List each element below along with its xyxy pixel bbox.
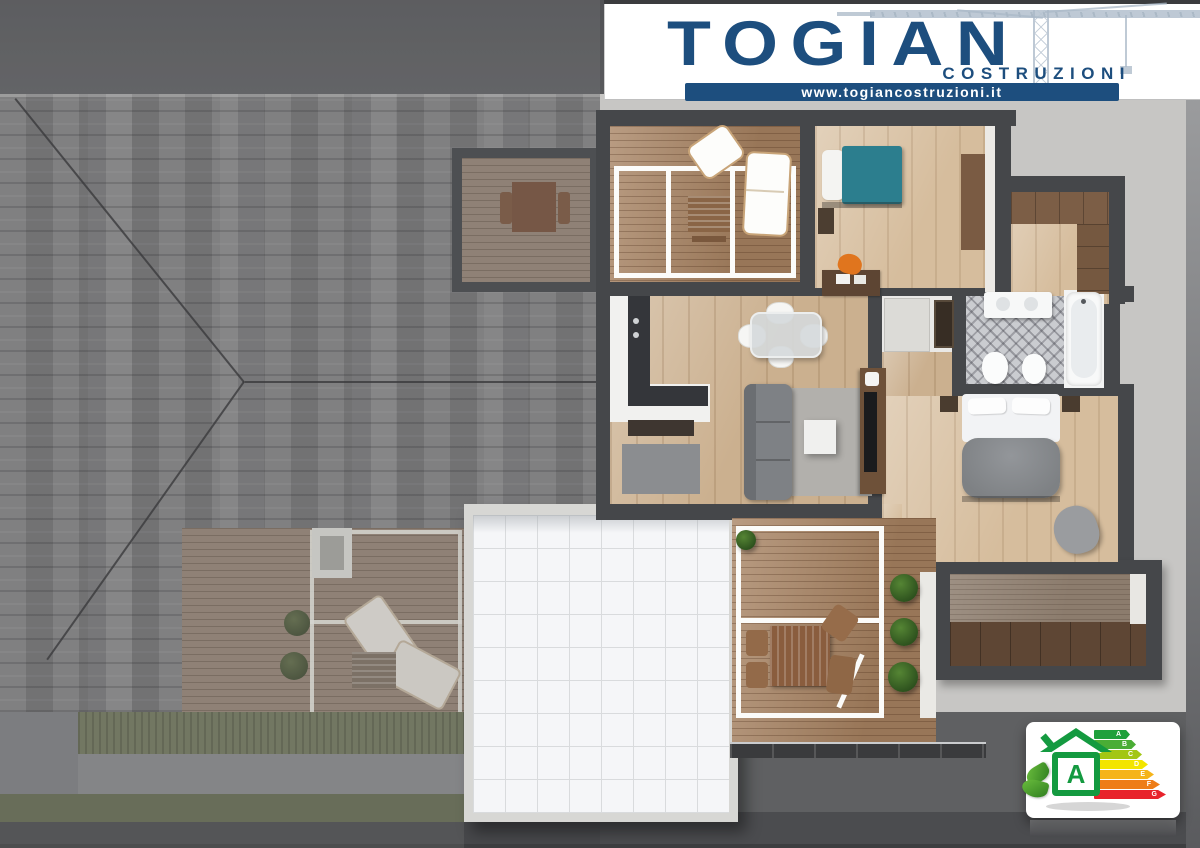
desk-papers (854, 275, 866, 284)
bed-base-shadow (962, 496, 1060, 502)
desk-papers (836, 274, 850, 284)
house-shadow (1046, 802, 1130, 811)
energy-class-letter: D (1134, 761, 1139, 768)
terrace-chair (746, 630, 768, 656)
nightstand (940, 396, 958, 412)
hall-shelf-unit (884, 298, 930, 352)
wardrobe (961, 154, 985, 250)
bed-pillow (822, 150, 844, 200)
hob-burner (633, 318, 639, 324)
slatted-coffee-table (688, 196, 730, 232)
walkin-closet-cabinets (1011, 192, 1109, 224)
master-bed-duvet (962, 438, 1060, 498)
gray-rug (622, 444, 700, 494)
bathtub-faucet (1081, 299, 1086, 304)
hob-burner (633, 332, 639, 338)
bed-pillow (968, 397, 1007, 414)
website-bar: www.togiancostruzioni.it (685, 83, 1119, 101)
sofa-cushion-seam (756, 459, 790, 461)
terrace-chair (746, 662, 768, 688)
terrace-dining-table (770, 626, 830, 686)
energy-class-letter: E (1140, 771, 1145, 778)
wall (995, 110, 1011, 300)
website-url: www.togiancostruzioni.it (801, 84, 1002, 100)
energy-class-letter: C (1128, 751, 1133, 758)
bush (888, 662, 918, 692)
sofa-backrest (744, 384, 756, 500)
logo-tagline: COSTRUZIONI (942, 64, 1131, 84)
storage-cabinets (950, 622, 1146, 666)
bush (736, 530, 756, 550)
energy-class-letter: B (1122, 741, 1127, 748)
house-roof-inner (1050, 736, 1102, 753)
slatted-table-shelf (692, 236, 726, 242)
sink-bowl (1024, 297, 1038, 311)
coffee-table-cube (804, 420, 836, 454)
terrace-railing-post (730, 166, 735, 278)
energy-house-icon: A (1052, 752, 1100, 796)
energy-class-letter: A (1116, 731, 1121, 738)
terrace-railing-post (666, 166, 671, 278)
wall (1118, 384, 1134, 576)
single-bed-teal (842, 146, 902, 204)
kitchen-countertop (628, 386, 708, 406)
dining-table-glass (750, 312, 822, 358)
sofa-cushion-seam (756, 421, 790, 423)
deck-fascia (730, 744, 986, 758)
roof-ridge-line (245, 381, 600, 383)
energy-arrow-e: E (1094, 770, 1154, 779)
wall (997, 176, 1125, 192)
sink-bowl (996, 297, 1010, 311)
deck-storage-box (352, 652, 396, 688)
storage-wall-face (1130, 574, 1146, 624)
energy-arrow-f: F (1094, 780, 1160, 789)
nightstand (1062, 396, 1080, 412)
bottom-edge-strip (0, 844, 1200, 848)
toilet (982, 352, 1008, 384)
wall (1109, 176, 1125, 304)
outdoor-sofa (742, 151, 792, 237)
energy-class-letter: F (1147, 781, 1151, 788)
tv-screen (864, 392, 877, 472)
bed-pillow (1012, 397, 1051, 414)
bathroom-sink-cabinet (984, 292, 1052, 318)
right-edge-strip (1186, 94, 1200, 848)
interior-wall-face (985, 126, 995, 292)
nightstand (818, 208, 834, 234)
logo-banner: TOGIAN COSTRUZIONI www.togiancostruzioni… (604, 4, 1200, 100)
terrace-railing-rail (736, 618, 884, 623)
wall (596, 110, 610, 520)
bush (890, 618, 918, 646)
crane-hook-cable (1125, 15, 1127, 67)
storage-room-interior (950, 574, 1146, 626)
bush (280, 652, 308, 680)
tiled-roof-terrace (473, 515, 729, 813)
sideboard (628, 420, 694, 436)
neighbor-balcony-chair (558, 192, 570, 224)
bathtub-basin (1071, 298, 1097, 378)
energy-arrow-d: D (1094, 760, 1148, 769)
floor-plan-render: TOGIAN COSTRUZIONI www.togiancostruzioni… (0, 0, 1200, 848)
neighbor-balcony-table (512, 182, 556, 232)
terrace-lounge-chair (825, 654, 856, 695)
walkin-closet-cabinets (1077, 224, 1109, 294)
tv-cabinet-decor (865, 372, 879, 386)
hallway-floor (882, 352, 952, 398)
kitchen-countertop (628, 296, 650, 400)
roof-fascia (0, 94, 600, 97)
neighbor-chimney-flue (320, 536, 344, 570)
upper-street-area (0, 0, 604, 94)
bed-base-shadow (822, 202, 902, 208)
badge-reflection (1030, 820, 1176, 836)
hall-mirror-panel (934, 300, 954, 348)
energy-class-letter: G (1152, 791, 1157, 798)
neighbor-balcony-chair (500, 192, 512, 224)
bidet (1022, 354, 1046, 384)
bush (284, 610, 310, 636)
terrace-wall-face (920, 572, 936, 718)
energy-arrow-g: G (1094, 790, 1166, 799)
bush (890, 574, 918, 602)
energy-badge: A B C D E F G A (1026, 722, 1180, 818)
